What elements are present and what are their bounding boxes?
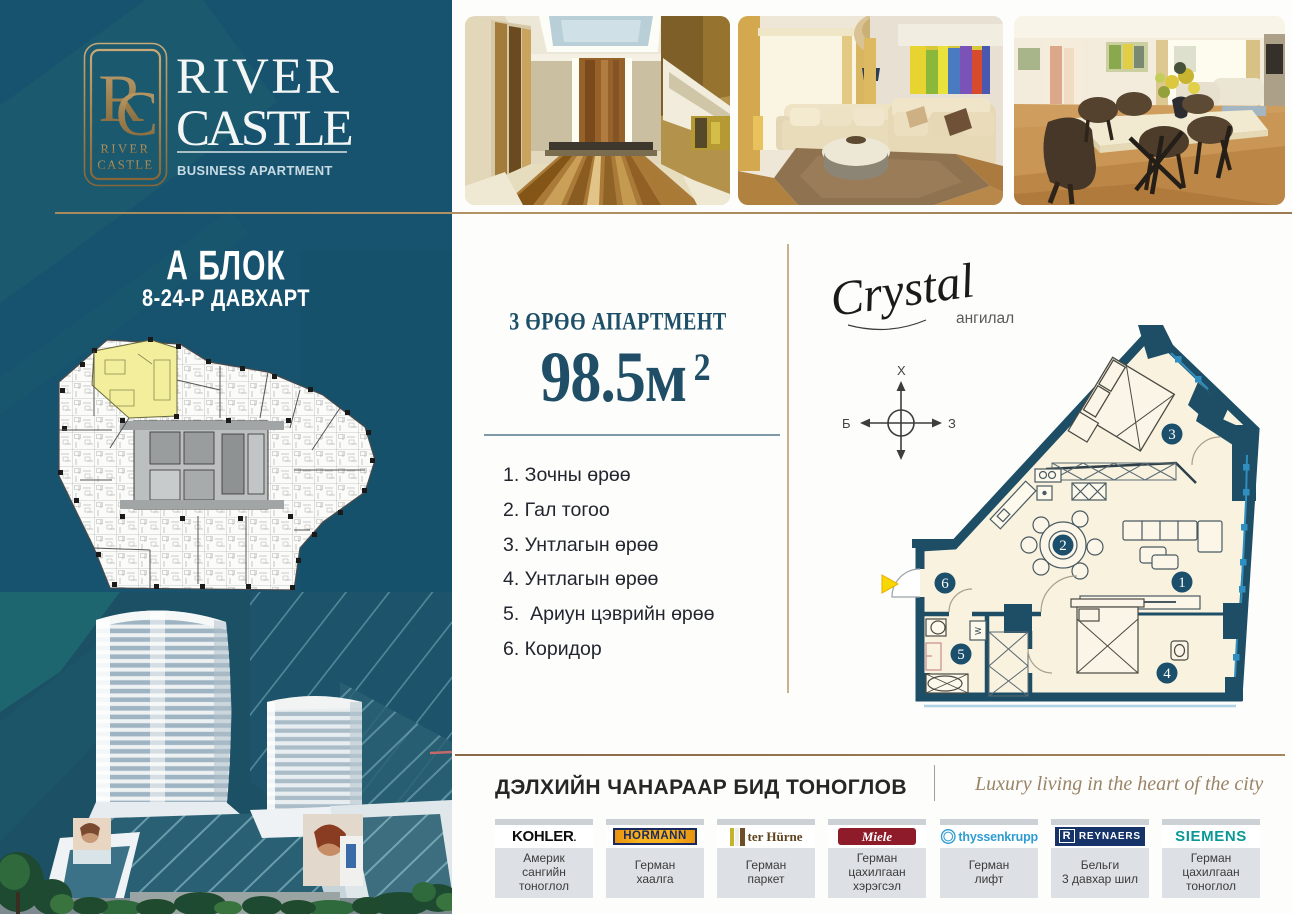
svg-text:5: 5: [957, 647, 965, 663]
svg-text:4: 4: [1163, 666, 1171, 682]
svg-text:RIVER: RIVER: [101, 142, 151, 156]
svg-text:1: 1: [1178, 575, 1186, 591]
svg-text:CASTLE: CASTLE: [97, 158, 153, 172]
svg-text:W: W: [974, 627, 983, 635]
svg-text:6: 6: [941, 576, 949, 592]
svg-text:3: 3: [1168, 427, 1176, 443]
svg-text:Crystal: Crystal: [827, 252, 978, 327]
svg-text:Б: Б: [842, 416, 851, 431]
svg-text:2: 2: [1059, 538, 1067, 554]
